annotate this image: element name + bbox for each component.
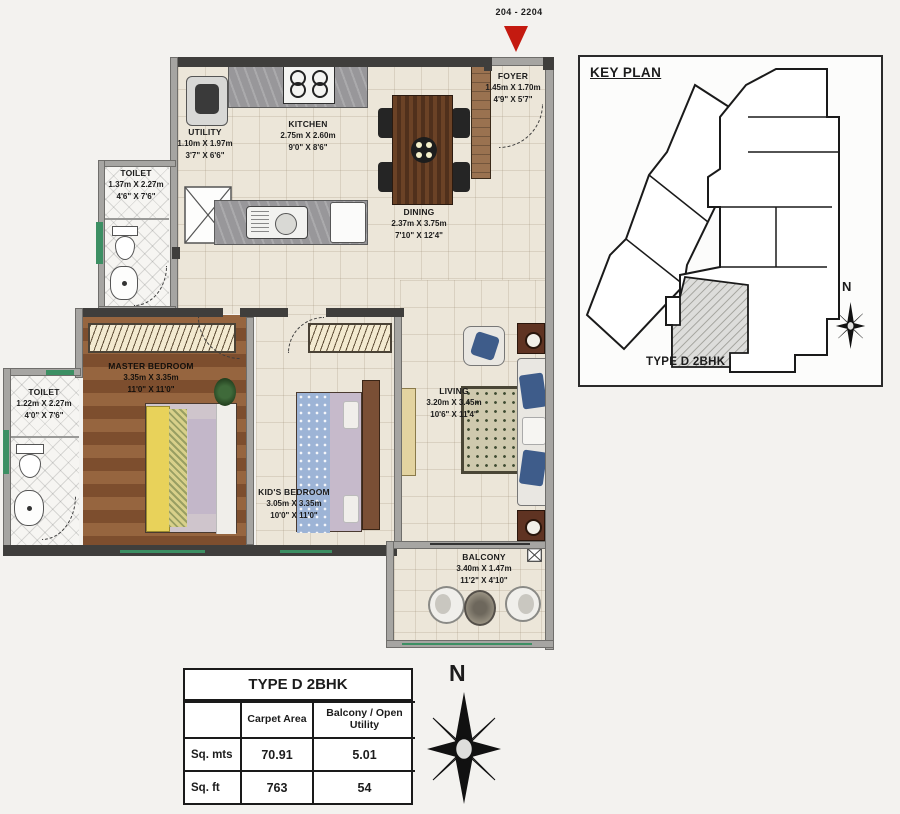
washing-machine-drum: [195, 84, 219, 114]
room-label-master-bedroom: MASTER BEDROOM 3.35m X 3.35m 11'0" X 11'…: [86, 360, 216, 396]
balcony-value: 54: [312, 770, 415, 803]
room-dim-m: 1.22m X 2.27m: [10, 398, 78, 410]
wall-master-top-a: [75, 308, 223, 317]
room-label-foyer: FOYER 1.45m X 1.70m 4'9" X 5'7": [481, 70, 545, 106]
room-name: KITCHEN: [252, 118, 364, 130]
room-dim-ft: 11'2" X 4'10": [428, 575, 540, 587]
key-plan-type-label: TYPE D 2BHK: [646, 356, 725, 368]
sink-drainboard: [251, 211, 269, 235]
header-blank: [185, 701, 240, 737]
room-dim-m: 1.37m X 2.27m: [104, 179, 168, 191]
room-label-kitchen: KITCHEN 2.75m X 2.60m 9'0" X 8'6": [252, 118, 364, 154]
compass-north-label: N: [449, 660, 466, 687]
key-plan-compass-icon: [836, 302, 865, 349]
centerpiece-dot: [426, 142, 432, 148]
room-dim-ft: 4'0" X 7'6": [10, 410, 78, 422]
kids-bed-pillow: [343, 401, 359, 429]
wall-foyer-top: [488, 57, 546, 66]
window-master-bottom: [120, 550, 205, 553]
key-plan-drawing: [580, 57, 885, 389]
sofa-cushion: [519, 372, 547, 409]
room-name: UTILITY: [173, 126, 237, 138]
room-dim-ft: 7'10" X 12'4": [375, 230, 463, 242]
dining-chair: [452, 162, 470, 192]
dining-chair: [452, 108, 470, 138]
master-bed: [145, 403, 237, 533]
sofa-cushion: [519, 449, 547, 486]
header-balcony-open-utility: Balcony / Open Utility: [312, 701, 415, 737]
side-table: [517, 510, 545, 541]
armchair: [463, 326, 505, 366]
stove: [283, 64, 335, 104]
wall-top: [172, 57, 488, 67]
kitchen-appliance: [330, 202, 366, 243]
room-dim-m: 3.35m X 3.35m: [86, 372, 216, 384]
room-label-toilet-left: TOILET 1.22m X 2.27m 4'0" X 7'6": [10, 386, 78, 422]
toilet-top-partition: [105, 218, 169, 220]
sofa-seat: [522, 417, 546, 445]
header-carpet-area: Carpet Area: [240, 701, 312, 737]
wall-post-kitchen: [172, 247, 180, 259]
master-plant: [214, 378, 236, 406]
burner-icon: [312, 82, 328, 98]
room-label-dining: DINING 2.37m X 3.75m 7'10" X 12'4": [375, 206, 463, 242]
room-dim-ft: 10'0" X 11'0": [240, 510, 348, 522]
table-lamp-icon: [525, 519, 542, 536]
master-bed-mattress: [188, 419, 218, 514]
room-name: TOILET: [10, 386, 78, 398]
unit-range-label: 204 - 2204: [487, 7, 551, 17]
chair-seat: [435, 594, 451, 614]
side-table: [517, 323, 545, 354]
kitchen-sink: [246, 206, 308, 239]
area-table: TYPE D 2BHK Carpet Area Balcony / Open U…: [183, 668, 413, 805]
wall-balcony-left: [386, 541, 394, 648]
room-dim-m: 1.10m X 1.97m: [173, 138, 237, 150]
balcony-value: 5.01: [312, 737, 415, 770]
wall-kids-top-a: [254, 308, 288, 317]
area-table-header-row: Carpet Area Balcony / Open Utility: [185, 701, 411, 737]
kids-bed-headboard: [362, 380, 380, 530]
basin-drain: [122, 281, 127, 286]
room-dim-ft: 11'0" X 11'0": [86, 384, 216, 396]
basin-drain: [27, 506, 32, 511]
carpet-value: 70.91: [240, 737, 312, 770]
compass-rose-icon: [426, 692, 502, 804]
room-name: FOYER: [481, 70, 545, 82]
armchair-cushion: [470, 331, 500, 361]
room-dim-ft: 9'0" X 8'6": [252, 142, 364, 154]
room-label-utility: UTILITY 1.10m X 1.97m 3'7" X 6'6": [173, 126, 237, 162]
table-lamp-icon: [525, 332, 542, 349]
room-label-balcony: BALCONY 3.40m X 1.47m 11'2" X 4'10": [428, 551, 540, 587]
wall-kids-top-b: [326, 308, 402, 317]
key-plan-north-label: N: [842, 279, 851, 294]
room-name: MASTER BEDROOM: [86, 360, 216, 372]
room-name: TOILET: [104, 167, 168, 179]
toilet-left-wc-tank: [16, 444, 44, 454]
wall-entry-jamb-left: [484, 57, 492, 71]
area-table-row-sqft: Sq. ft 763 54: [185, 770, 411, 803]
centerpiece-dot: [416, 142, 422, 148]
room-label-toilet-top: TOILET 1.37m X 2.27m 4'6" X 7'6": [104, 167, 168, 203]
room-dim-ft: 3'7" X 6'6": [173, 150, 237, 162]
centerpiece-dot: [426, 152, 432, 158]
key-plan: KEY PLAN: [578, 55, 883, 387]
window-toilet-top: [96, 222, 103, 264]
room-dim-ft: 4'6" X 7'6": [104, 191, 168, 203]
wall-post-kids: [394, 308, 404, 317]
room-name: DINING: [375, 206, 463, 218]
sink-bowl: [275, 213, 297, 235]
dining-table: [392, 95, 453, 205]
window-toilet-left-top: [46, 370, 74, 375]
room-dim-m: 2.37m X 3.75m: [375, 218, 463, 230]
balcony-table: [464, 590, 496, 626]
wall-kids-right: [394, 308, 402, 545]
table-centerpiece: [411, 137, 437, 163]
toilet-left-basin: [14, 490, 44, 526]
wall-right: [545, 57, 554, 650]
washing-machine: [186, 76, 228, 126]
window-toilet-left: [3, 430, 9, 474]
toilet-top-wc-tank: [112, 226, 138, 236]
room-dim-m: 1.45m X 1.70m: [481, 82, 545, 94]
room-dim-m: 3.40m X 1.47m: [428, 563, 540, 575]
room-dim-m: 2.75m X 2.60m: [252, 130, 364, 142]
master-bed-pillows: [216, 404, 236, 534]
room-dim-ft: 10'6" X 11'4": [404, 409, 504, 421]
chair-seat: [518, 594, 534, 614]
balcony-chair: [428, 586, 465, 624]
balcony-slider-track: [430, 543, 530, 545]
room-name: KID'S BEDROOM: [240, 486, 348, 498]
wall-entry-jamb-right: [543, 57, 554, 70]
centerpiece-dot: [416, 152, 422, 158]
master-bed-runner: [146, 406, 170, 532]
wall-kitchen-left: [170, 57, 178, 313]
area-table-row-sqmts: Sq. mts 70.91 5.01: [185, 737, 411, 770]
carpet-value: 763: [240, 770, 312, 803]
entrance-marker-icon: [504, 26, 528, 52]
room-label-living: LIVING 3.20m X 3.45m 10'6" X 11'4": [404, 385, 504, 421]
room-dim-m: 3.20m X 3.45m: [404, 397, 504, 409]
room-name: BALCONY: [428, 551, 540, 563]
toilet-left-partition: [11, 436, 79, 438]
burner-icon: [290, 82, 306, 98]
room-dim-ft: 4'9" X 5'7": [481, 94, 545, 106]
room-name: LIVING: [404, 385, 504, 397]
room-dim-m: 3.05m X 3.35m: [240, 498, 348, 510]
unit-label: Sq. mts: [185, 737, 240, 770]
wall-toilet-top-upper: [98, 160, 176, 167]
floorplan-page: 204 - 2204: [0, 0, 900, 814]
balcony-rail-window: [402, 643, 532, 645]
room-label-kids-bedroom: KID'S BEDROOM 3.05m X 3.35m 10'0" X 11'0…: [240, 486, 348, 522]
area-table-title: TYPE D 2BHK: [185, 670, 411, 701]
window-kids-bottom: [280, 550, 332, 553]
unit-label: Sq. ft: [185, 770, 240, 803]
master-bed-blanket: [169, 409, 187, 527]
balcony-chair: [505, 586, 541, 622]
key-plan-highlighted-unit: [672, 277, 748, 367]
